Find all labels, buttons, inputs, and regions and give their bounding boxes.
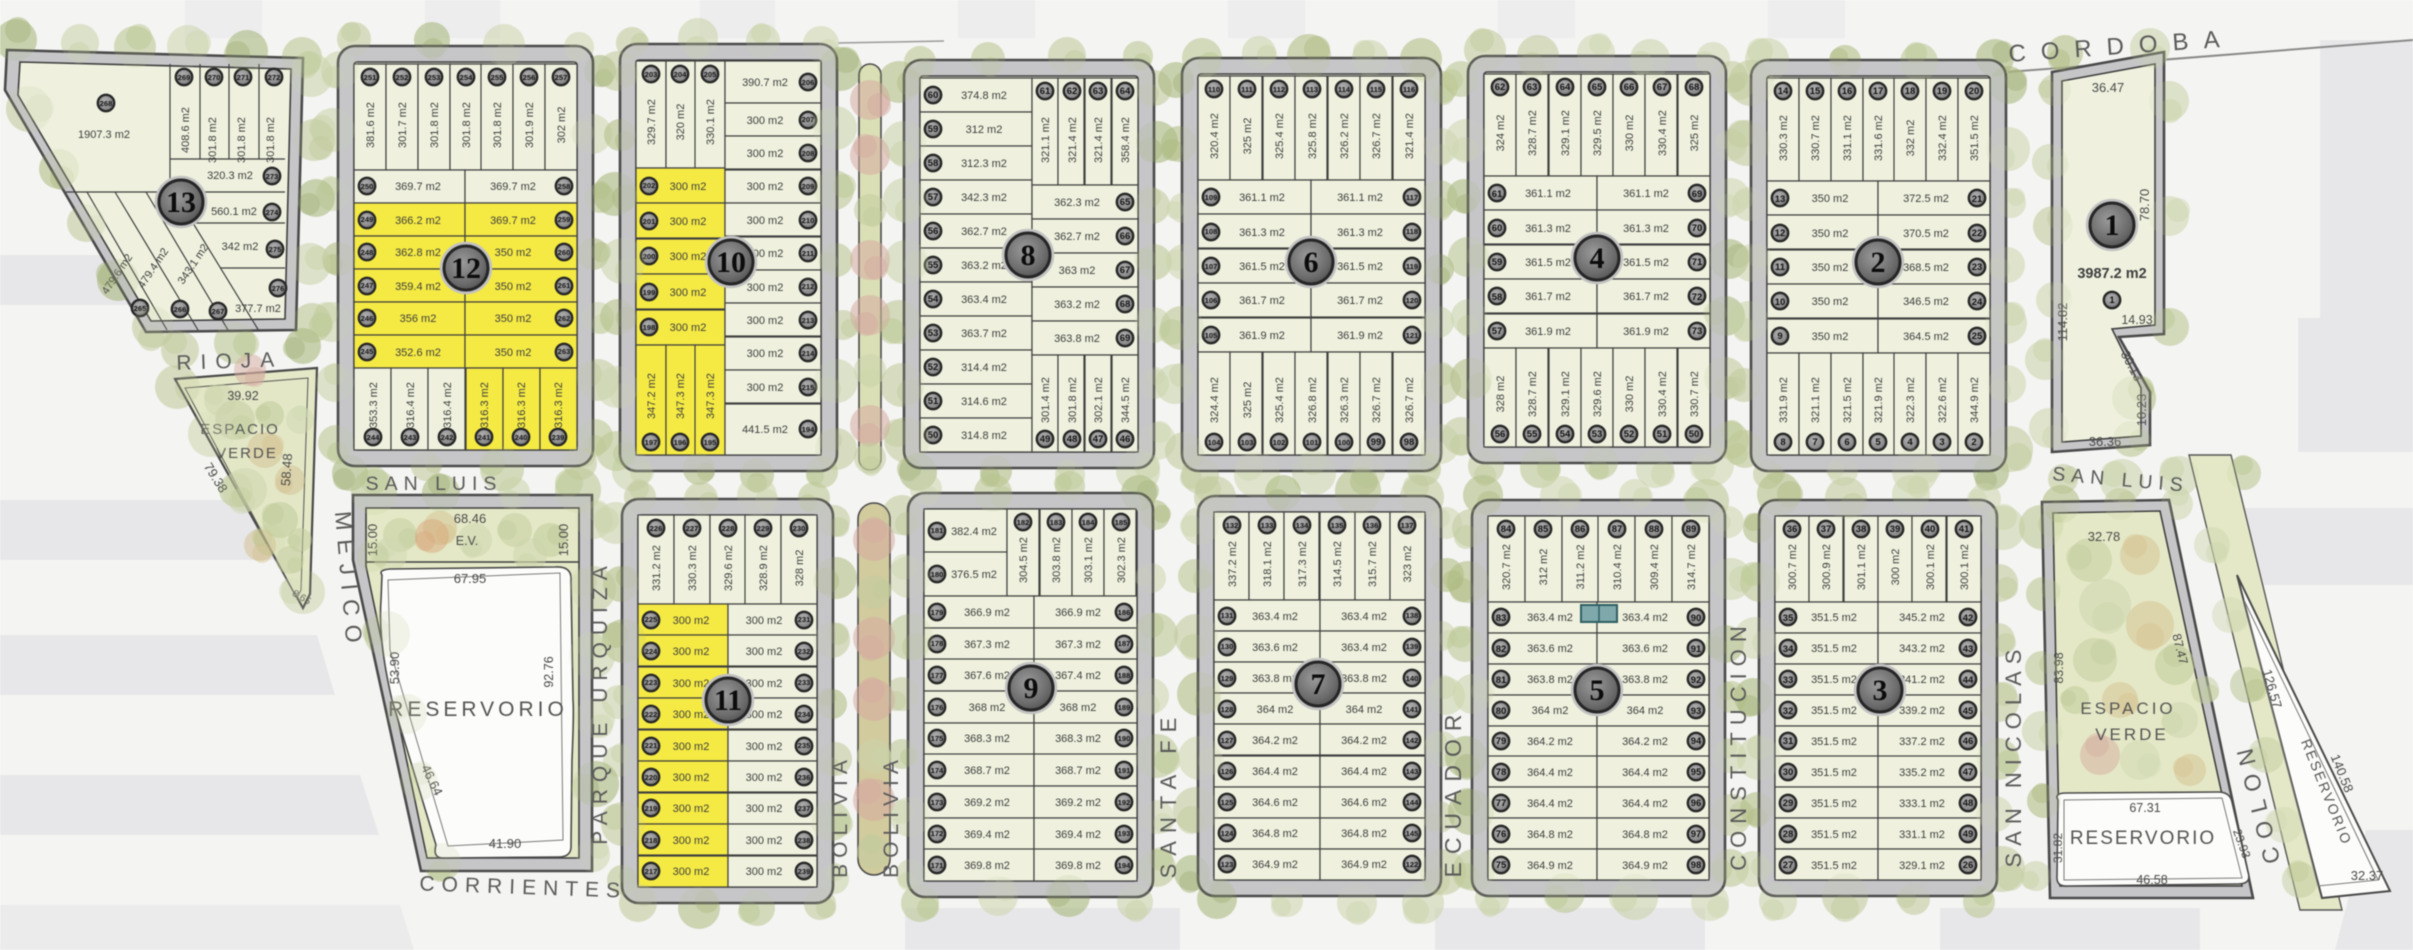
svg-text:63: 63	[1093, 86, 1104, 97]
svg-text:145: 145	[1406, 829, 1419, 838]
svg-text:344.5 m2: 344.5 m2	[1120, 377, 1132, 423]
svg-text:203: 203	[645, 70, 658, 79]
svg-text:133: 133	[1261, 521, 1274, 530]
svg-text:300 m2: 300 m2	[673, 866, 710, 878]
svg-text:108: 108	[1205, 227, 1218, 236]
svg-text:85: 85	[1538, 524, 1549, 535]
svg-text:352.6 m2: 352.6 m2	[395, 347, 441, 359]
svg-text:302 m2: 302 m2	[556, 107, 568, 144]
svg-text:61: 61	[1492, 189, 1503, 200]
svg-text:300 m2: 300 m2	[673, 709, 710, 721]
svg-text:81: 81	[1496, 675, 1507, 686]
svg-text:116: 116	[1403, 85, 1415, 94]
svg-text:255: 255	[491, 73, 504, 82]
svg-text:4: 4	[1590, 242, 1605, 275]
svg-text:121: 121	[1406, 331, 1419, 340]
svg-text:350 m2: 350 m2	[495, 281, 532, 293]
svg-text:351.5 m2: 351.5 m2	[1811, 736, 1857, 748]
svg-text:301.8 m2: 301.8 m2	[265, 117, 277, 163]
svg-text:234: 234	[798, 710, 811, 719]
svg-text:193: 193	[1118, 829, 1131, 838]
svg-text:73: 73	[1692, 326, 1703, 337]
svg-text:1: 1	[2109, 295, 2115, 306]
svg-text:128: 128	[1221, 705, 1234, 714]
svg-text:330.7 m2: 330.7 m2	[1810, 115, 1822, 161]
svg-text:356 m2: 356 m2	[400, 313, 437, 325]
svg-text:364.2 m2: 364.2 m2	[1252, 735, 1298, 747]
svg-text:2: 2	[1971, 437, 1976, 448]
svg-text:361.3 m2: 361.3 m2	[1337, 227, 1383, 239]
svg-text:301.8 m2: 301.8 m2	[1067, 377, 1079, 423]
svg-text:325.8 m2: 325.8 m2	[1307, 113, 1319, 159]
svg-text:55: 55	[1527, 429, 1538, 440]
svg-text:301.7 m2: 301.7 m2	[397, 102, 409, 148]
svg-text:32.37: 32.37	[2351, 868, 2384, 883]
svg-text:ECUADOR: ECUADOR	[1440, 706, 1466, 877]
svg-text:223: 223	[645, 678, 658, 687]
svg-text:350 m2: 350 m2	[1812, 296, 1849, 308]
svg-text:333.1 m2: 333.1 m2	[1899, 798, 1945, 810]
svg-text:347.3 m2: 347.3 m2	[705, 373, 717, 419]
svg-text:300 m2: 300 m2	[673, 741, 710, 753]
svg-text:366.9 m2: 366.9 m2	[964, 607, 1010, 619]
svg-text:322.6 m2: 322.6 m2	[1937, 377, 1949, 423]
svg-text:BOLIVIA: BOLIVIA	[880, 754, 903, 878]
svg-text:30: 30	[1783, 767, 1794, 778]
svg-text:67: 67	[1657, 82, 1668, 93]
svg-text:189: 189	[1118, 703, 1131, 712]
svg-text:326.7 m2: 326.7 m2	[1371, 113, 1383, 159]
svg-text:350 m2: 350 m2	[1812, 262, 1849, 274]
svg-text:197: 197	[645, 438, 658, 447]
svg-text:65: 65	[1120, 197, 1131, 208]
svg-text:248: 248	[361, 248, 374, 257]
svg-text:316.4 m2: 316.4 m2	[405, 382, 417, 428]
svg-text:369.7 m2: 369.7 m2	[490, 215, 536, 227]
svg-text:300 m2: 300 m2	[747, 315, 784, 327]
svg-text:328.9 m2: 328.9 m2	[758, 545, 770, 591]
svg-text:195: 195	[704, 438, 717, 447]
svg-text:182: 182	[1017, 518, 1030, 527]
svg-text:364.2 m2: 364.2 m2	[1527, 736, 1573, 748]
svg-text:321.1 m2: 321.1 m2	[1040, 117, 1052, 163]
svg-text:231: 231	[798, 615, 811, 624]
svg-text:343.2 m2: 343.2 m2	[1899, 643, 1945, 655]
svg-text:48: 48	[1963, 798, 1974, 809]
svg-text:SANTA FE: SANTA FE	[1156, 710, 1181, 879]
svg-text:224: 224	[645, 647, 658, 656]
svg-text:326.8 m2: 326.8 m2	[1307, 377, 1319, 423]
svg-text:2: 2	[1871, 246, 1886, 279]
svg-text:46: 46	[1120, 434, 1131, 445]
svg-text:241: 241	[478, 433, 491, 442]
svg-text:326.7 m2: 326.7 m2	[1371, 377, 1383, 423]
svg-text:11: 11	[714, 684, 742, 717]
svg-text:SAN LUIS: SAN LUIS	[366, 473, 503, 495]
svg-text:300 m2: 300 m2	[670, 251, 707, 263]
svg-text:361.5 m2: 361.5 m2	[1525, 257, 1571, 269]
svg-text:300.1 m2: 300.1 m2	[1959, 544, 1971, 590]
svg-text:347.2 m2: 347.2 m2	[646, 373, 658, 419]
svg-text:331.2 m2: 331.2 m2	[651, 545, 663, 591]
svg-text:367.4 m2: 367.4 m2	[1055, 670, 1101, 682]
svg-text:368.3 m2: 368.3 m2	[1055, 733, 1101, 745]
svg-text:320.3 m2: 320.3 m2	[207, 170, 253, 182]
svg-text:363.4 m2: 363.4 m2	[1341, 642, 1387, 654]
svg-text:311.2 m2: 311.2 m2	[1575, 544, 1587, 589]
svg-text:377.7 m2: 377.7 m2	[235, 303, 281, 315]
svg-text:115: 115	[1370, 85, 1383, 94]
svg-text:6: 6	[1304, 246, 1319, 279]
svg-text:112: 112	[1273, 85, 1285, 94]
svg-text:321.5 m2: 321.5 m2	[1842, 377, 1854, 423]
svg-text:7: 7	[1311, 668, 1326, 701]
svg-text:328 m2: 328 m2	[794, 550, 806, 587]
svg-text:126: 126	[1221, 767, 1234, 776]
svg-text:66: 66	[1120, 231, 1131, 242]
svg-text:353.3 m2: 353.3 m2	[368, 382, 380, 428]
svg-text:300 m2: 300 m2	[747, 382, 784, 394]
svg-text:359.4 m2: 359.4 m2	[395, 281, 441, 293]
svg-text:50: 50	[1689, 429, 1700, 440]
svg-text:53: 53	[928, 328, 939, 339]
svg-text:351.5 m2: 351.5 m2	[1811, 643, 1857, 655]
svg-text:364.2 m2: 364.2 m2	[1622, 736, 1668, 748]
svg-text:368.7 m2: 368.7 m2	[964, 765, 1010, 777]
svg-text:15: 15	[1810, 86, 1821, 97]
svg-text:51: 51	[928, 396, 939, 407]
svg-text:300 m2: 300 m2	[747, 115, 784, 127]
svg-text:1: 1	[2105, 209, 2120, 242]
svg-text:90: 90	[1691, 613, 1702, 624]
svg-text:171: 171	[931, 861, 944, 870]
svg-text:271: 271	[237, 73, 250, 82]
svg-text:13: 13	[166, 186, 196, 219]
svg-text:184: 184	[1082, 518, 1095, 527]
svg-text:361.9 m2: 361.9 m2	[1239, 330, 1285, 342]
svg-text:369.2 m2: 369.2 m2	[1055, 797, 1101, 809]
svg-text:32.78: 32.78	[2088, 529, 2121, 544]
svg-text:300 m2: 300 m2	[670, 287, 707, 299]
svg-text:350 m2: 350 m2	[1812, 193, 1849, 205]
svg-text:441.5 m2: 441.5 m2	[742, 424, 788, 436]
svg-text:361.1 m2: 361.1 m2	[1337, 192, 1383, 204]
svg-text:370.5 m2: 370.5 m2	[1903, 228, 1949, 240]
svg-text:84: 84	[1501, 524, 1512, 535]
svg-text:260: 260	[558, 248, 571, 257]
svg-text:1907.3 m2: 1907.3 m2	[78, 129, 130, 141]
svg-text:361.9 m2: 361.9 m2	[1337, 330, 1383, 342]
svg-text:117: 117	[1406, 193, 1418, 202]
svg-text:330.1 m2: 330.1 m2	[705, 99, 717, 145]
svg-text:332 m2: 332 m2	[1905, 120, 1917, 157]
svg-text:65: 65	[1592, 82, 1603, 93]
svg-text:364.5 m2: 364.5 m2	[1903, 331, 1949, 343]
svg-text:361.3 m2: 361.3 m2	[1623, 223, 1669, 235]
svg-text:12: 12	[1775, 228, 1786, 239]
svg-text:75: 75	[1496, 860, 1507, 871]
svg-text:326.3 m2: 326.3 m2	[1339, 377, 1351, 423]
svg-text:91: 91	[1691, 644, 1702, 655]
svg-text:314.7 m2: 314.7 m2	[1686, 544, 1698, 590]
svg-text:328.7 m2: 328.7 m2	[1527, 110, 1539, 156]
svg-text:97: 97	[1691, 829, 1702, 840]
svg-text:131: 131	[1221, 611, 1234, 620]
svg-text:46: 46	[1963, 736, 1974, 747]
svg-text:330.3 m2: 330.3 m2	[1778, 115, 1790, 161]
svg-text:211: 211	[802, 249, 815, 258]
svg-text:186: 186	[1118, 608, 1131, 617]
svg-text:300 m2: 300 m2	[673, 772, 710, 784]
svg-text:263: 263	[558, 347, 571, 356]
svg-text:51: 51	[1657, 429, 1668, 440]
svg-text:350 m2: 350 m2	[495, 313, 532, 325]
svg-text:196: 196	[674, 438, 687, 447]
svg-text:199: 199	[643, 288, 656, 297]
svg-text:29: 29	[1783, 798, 1794, 809]
svg-text:204: 204	[674, 70, 687, 79]
svg-text:60: 60	[1492, 223, 1503, 234]
svg-text:300 m2: 300 m2	[747, 282, 784, 294]
svg-text:57: 57	[1492, 326, 1503, 337]
svg-text:300.1 m2: 300.1 m2	[1925, 544, 1937, 590]
svg-text:217: 217	[645, 867, 658, 876]
svg-text:64: 64	[1120, 86, 1131, 97]
svg-text:301.8 m2: 301.8 m2	[207, 117, 219, 163]
svg-text:243: 243	[404, 433, 417, 442]
svg-text:303.8 m2: 303.8 m2	[1051, 537, 1063, 583]
svg-text:10: 10	[716, 246, 746, 279]
svg-text:342 m2: 342 m2	[222, 241, 259, 253]
svg-text:174: 174	[931, 766, 944, 775]
svg-text:361.1 m2: 361.1 m2	[1525, 188, 1571, 200]
svg-text:28: 28	[1783, 829, 1794, 840]
svg-text:261: 261	[558, 281, 571, 290]
svg-text:364.4 m2: 364.4 m2	[1527, 767, 1573, 779]
svg-text:69: 69	[1692, 189, 1703, 200]
svg-text:68: 68	[1120, 299, 1131, 310]
svg-text:118: 118	[1406, 227, 1418, 236]
svg-text:198: 198	[643, 323, 656, 332]
svg-text:76: 76	[1496, 829, 1507, 840]
svg-text:59: 59	[1492, 257, 1503, 268]
svg-text:367.6 m2: 367.6 m2	[964, 670, 1010, 682]
svg-text:219: 219	[645, 804, 658, 813]
svg-text:363.6 m2: 363.6 m2	[1622, 643, 1668, 655]
svg-text:300 m2: 300 m2	[673, 615, 710, 627]
svg-text:364 m2: 364 m2	[1346, 704, 1383, 716]
svg-text:137: 137	[1401, 521, 1414, 530]
svg-text:22: 22	[1972, 228, 1983, 239]
svg-text:361.5 m2: 361.5 m2	[1337, 261, 1383, 273]
svg-text:300 m2: 300 m2	[747, 148, 784, 160]
svg-text:364.4 m2: 364.4 m2	[1622, 798, 1668, 810]
svg-text:14: 14	[1778, 86, 1789, 97]
svg-text:374.8 m2: 374.8 m2	[961, 90, 1007, 102]
svg-text:PARQUE URQUIZA: PARQUE URQUIZA	[589, 559, 612, 844]
svg-text:301.8 m2: 301.8 m2	[429, 102, 441, 148]
svg-text:BOLIVIA: BOLIVIA	[829, 754, 852, 878]
svg-text:8: 8	[1780, 437, 1785, 448]
svg-text:364 m2: 364 m2	[1257, 704, 1294, 716]
svg-text:105: 105	[1205, 331, 1218, 340]
svg-text:15.00: 15.00	[556, 524, 571, 557]
svg-text:362.8 m2: 362.8 m2	[395, 247, 441, 259]
svg-text:364 m2: 364 m2	[1627, 705, 1664, 717]
svg-text:233: 233	[798, 678, 811, 687]
svg-text:310.4 m2: 310.4 m2	[1612, 544, 1624, 590]
svg-text:350 m2: 350 m2	[495, 247, 532, 259]
svg-text:350 m2: 350 m2	[495, 347, 532, 359]
svg-text:79: 79	[1496, 736, 1507, 747]
svg-text:268: 268	[100, 99, 113, 108]
svg-text:35: 35	[1783, 613, 1794, 624]
svg-text:320.4 m2: 320.4 m2	[1209, 113, 1221, 159]
svg-text:346.5 m2: 346.5 m2	[1903, 296, 1949, 308]
svg-text:245: 245	[361, 347, 374, 356]
svg-text:56: 56	[1495, 429, 1506, 440]
svg-text:363.8 m2: 363.8 m2	[1341, 673, 1387, 685]
svg-text:9: 9	[1777, 331, 1782, 342]
svg-text:361.7 m2: 361.7 m2	[1239, 295, 1285, 307]
svg-text:138: 138	[1406, 611, 1419, 620]
svg-text:321.4 m2: 321.4 m2	[1067, 117, 1079, 163]
svg-text:363 m2: 363 m2	[1059, 265, 1096, 277]
svg-text:364.9 m2: 364.9 m2	[1341, 859, 1387, 871]
svg-text:56: 56	[928, 226, 939, 237]
svg-text:3: 3	[1873, 674, 1888, 707]
svg-text:364.4 m2: 364.4 m2	[1252, 766, 1298, 778]
svg-text:314.6 m2: 314.6 m2	[961, 396, 1007, 408]
svg-text:106: 106	[1205, 296, 1218, 305]
svg-text:364.8 m2: 364.8 m2	[1527, 829, 1573, 841]
svg-text:363.2 m2: 363.2 m2	[961, 260, 1007, 272]
svg-text:11: 11	[1775, 262, 1786, 273]
svg-text:320 m2: 320 m2	[675, 104, 687, 141]
svg-text:369.4 m2: 369.4 m2	[964, 829, 1010, 841]
svg-text:44: 44	[1963, 675, 1974, 686]
svg-text:127: 127	[1221, 736, 1234, 745]
svg-text:300 m2: 300 m2	[673, 835, 710, 847]
svg-text:246: 246	[361, 314, 374, 323]
svg-text:329.6 m2: 329.6 m2	[1592, 371, 1604, 417]
svg-text:335.2 m2: 335.2 m2	[1899, 767, 1945, 779]
svg-text:361.9 m2: 361.9 m2	[1525, 326, 1571, 338]
svg-text:92: 92	[1691, 675, 1702, 686]
svg-text:301.8 m2: 301.8 m2	[492, 102, 504, 148]
svg-text:300 m2: 300 m2	[670, 322, 707, 334]
svg-text:367.3 m2: 367.3 m2	[964, 639, 1010, 651]
svg-text:41.90: 41.90	[489, 836, 522, 851]
svg-text:272: 272	[268, 73, 281, 82]
svg-text:274: 274	[266, 208, 279, 217]
svg-text:181: 181	[931, 526, 944, 535]
svg-text:111: 111	[1241, 85, 1254, 94]
svg-text:364.8 m2: 364.8 m2	[1252, 828, 1298, 840]
svg-text:258: 258	[558, 182, 571, 191]
svg-text:368.7 m2: 368.7 m2	[1055, 765, 1101, 777]
svg-text:69: 69	[1120, 333, 1131, 344]
svg-text:27: 27	[1783, 860, 1794, 871]
svg-text:83: 83	[1496, 613, 1507, 624]
svg-text:347.3 m2: 347.3 m2	[675, 373, 687, 419]
svg-text:300 m2: 300 m2	[747, 348, 784, 360]
svg-text:132: 132	[1226, 521, 1239, 530]
svg-text:36.47: 36.47	[2092, 80, 2125, 95]
svg-text:361.5 m2: 361.5 m2	[1623, 257, 1669, 269]
svg-text:330.3 m2: 330.3 m2	[687, 545, 699, 591]
svg-text:254: 254	[460, 73, 473, 82]
svg-text:57: 57	[928, 192, 939, 203]
svg-text:344.9 m2: 344.9 m2	[1969, 377, 1981, 423]
svg-text:329.1 m2: 329.1 m2	[1560, 371, 1572, 417]
svg-text:62: 62	[1067, 86, 1078, 97]
svg-text:SAN NICOLAS: SAN NICOLAS	[2001, 643, 2026, 868]
svg-text:227: 227	[686, 524, 699, 533]
svg-text:363.2 m2: 363.2 m2	[1054, 299, 1100, 311]
svg-text:4: 4	[1907, 437, 1913, 448]
svg-text:364.9 m2: 364.9 m2	[1252, 859, 1298, 871]
svg-text:238: 238	[798, 836, 811, 845]
svg-text:376.5 m2: 376.5 m2	[951, 569, 997, 581]
svg-text:66: 66	[1624, 82, 1635, 93]
svg-text:363.8 m2: 363.8 m2	[1054, 333, 1100, 345]
svg-text:205: 205	[704, 70, 717, 79]
svg-text:300 m2: 300 m2	[670, 216, 707, 228]
svg-text:16: 16	[1842, 86, 1853, 97]
svg-text:228: 228	[722, 524, 735, 533]
svg-text:82: 82	[1496, 644, 1507, 655]
svg-text:368 m2: 368 m2	[1060, 702, 1097, 714]
svg-text:250: 250	[361, 182, 374, 191]
svg-text:321.4 m2: 321.4 m2	[1093, 117, 1105, 163]
svg-text:70: 70	[1692, 223, 1703, 234]
svg-text:39: 39	[1890, 524, 1901, 535]
svg-text:351.5 m2: 351.5 m2	[1811, 829, 1857, 841]
svg-text:366.9 m2: 366.9 m2	[1055, 607, 1101, 619]
svg-text:113: 113	[1306, 85, 1318, 94]
svg-text:39.92: 39.92	[227, 389, 258, 403]
svg-text:3987.2 m2: 3987.2 m2	[2077, 266, 2146, 282]
svg-text:94: 94	[1691, 736, 1702, 747]
svg-text:64: 64	[1560, 82, 1571, 93]
svg-text:96: 96	[1691, 798, 1702, 809]
svg-text:342.3 m2: 342.3 m2	[961, 192, 1007, 204]
svg-text:330.7 m2: 330.7 m2	[1689, 371, 1701, 417]
svg-text:80: 80	[1496, 706, 1507, 717]
svg-text:368.3 m2: 368.3 m2	[964, 733, 1010, 745]
svg-text:361.5 m2: 361.5 m2	[1239, 261, 1285, 273]
svg-text:300 m2: 300 m2	[673, 678, 710, 690]
svg-text:302.3 m2: 302.3 m2	[1116, 537, 1128, 583]
svg-text:98: 98	[1404, 437, 1415, 448]
svg-text:331.6 m2: 331.6 m2	[1873, 115, 1885, 161]
svg-text:173: 173	[931, 798, 944, 807]
svg-text:363.6 m2: 363.6 m2	[1252, 642, 1298, 654]
svg-text:332.4 m2: 332.4 m2	[1937, 115, 1949, 161]
svg-text:9: 9	[1024, 672, 1039, 705]
svg-text:33: 33	[1783, 675, 1794, 686]
svg-text:363.4 m2: 363.4 m2	[1622, 612, 1668, 624]
svg-text:328.7 m2: 328.7 m2	[1527, 371, 1539, 417]
svg-text:300.9 m2: 300.9 m2	[1821, 544, 1833, 590]
svg-text:301.4 m2: 301.4 m2	[1040, 377, 1052, 423]
svg-text:270: 270	[208, 73, 221, 82]
svg-text:381.6 m2: 381.6 m2	[365, 102, 377, 148]
svg-text:239: 239	[552, 433, 565, 442]
svg-text:329.7 m2: 329.7 m2	[646, 99, 658, 145]
svg-text:6: 6	[1844, 437, 1849, 448]
